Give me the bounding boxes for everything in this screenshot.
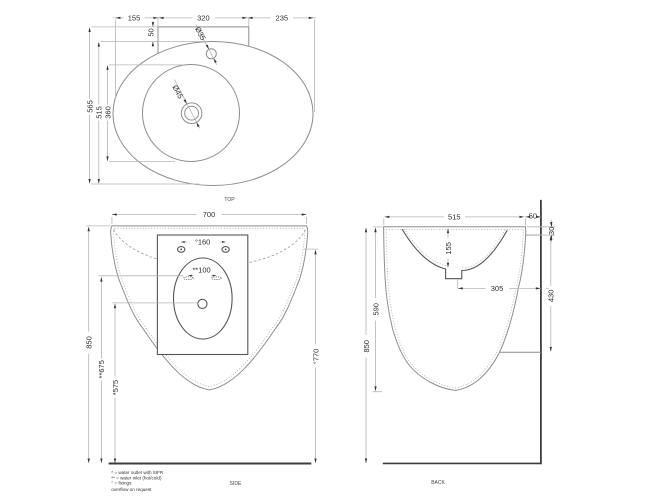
svg-text:°160: °160 — [195, 237, 211, 246]
svg-text:305: 305 — [491, 284, 504, 293]
svg-text:515: 515 — [448, 213, 461, 222]
svg-text:**100: **100 — [192, 265, 210, 274]
svg-text:SIDE: SIDE — [230, 481, 242, 487]
svg-text:Ø45: Ø45 — [171, 83, 186, 100]
svg-text:TOP: TOP — [224, 197, 235, 203]
svg-text:430: 430 — [547, 290, 556, 303]
svg-text:**675: **675 — [97, 360, 106, 378]
svg-text:320: 320 — [197, 14, 210, 23]
svg-text:50: 50 — [529, 212, 537, 221]
svg-text:overflow on request: overflow on request — [111, 487, 152, 492]
svg-text:590: 590 — [371, 303, 380, 316]
svg-text:850: 850 — [85, 336, 94, 349]
svg-text:° = fixings: ° = fixings — [111, 481, 132, 486]
svg-text:* = water outlet with SIFR: * = water outlet with SIFR — [111, 470, 164, 475]
svg-text:155: 155 — [444, 242, 453, 255]
svg-text:50: 50 — [146, 28, 155, 36]
svg-text:°770: °770 — [311, 349, 320, 365]
svg-text:Ø35: Ø35 — [193, 25, 208, 42]
svg-text:700: 700 — [203, 210, 216, 219]
svg-text:155: 155 — [128, 14, 141, 23]
svg-text:515: 515 — [95, 106, 104, 119]
svg-text:235: 235 — [276, 14, 289, 23]
svg-text:565: 565 — [85, 100, 94, 113]
svg-text:*575: *575 — [111, 380, 120, 395]
svg-text:** = water inlet (hot/cold): ** = water inlet (hot/cold) — [111, 475, 162, 480]
svg-text:BACK: BACK — [431, 480, 445, 486]
svg-text:360: 360 — [103, 106, 112, 119]
svg-text:850: 850 — [362, 340, 371, 353]
svg-text:-30-: -30- — [547, 224, 556, 238]
